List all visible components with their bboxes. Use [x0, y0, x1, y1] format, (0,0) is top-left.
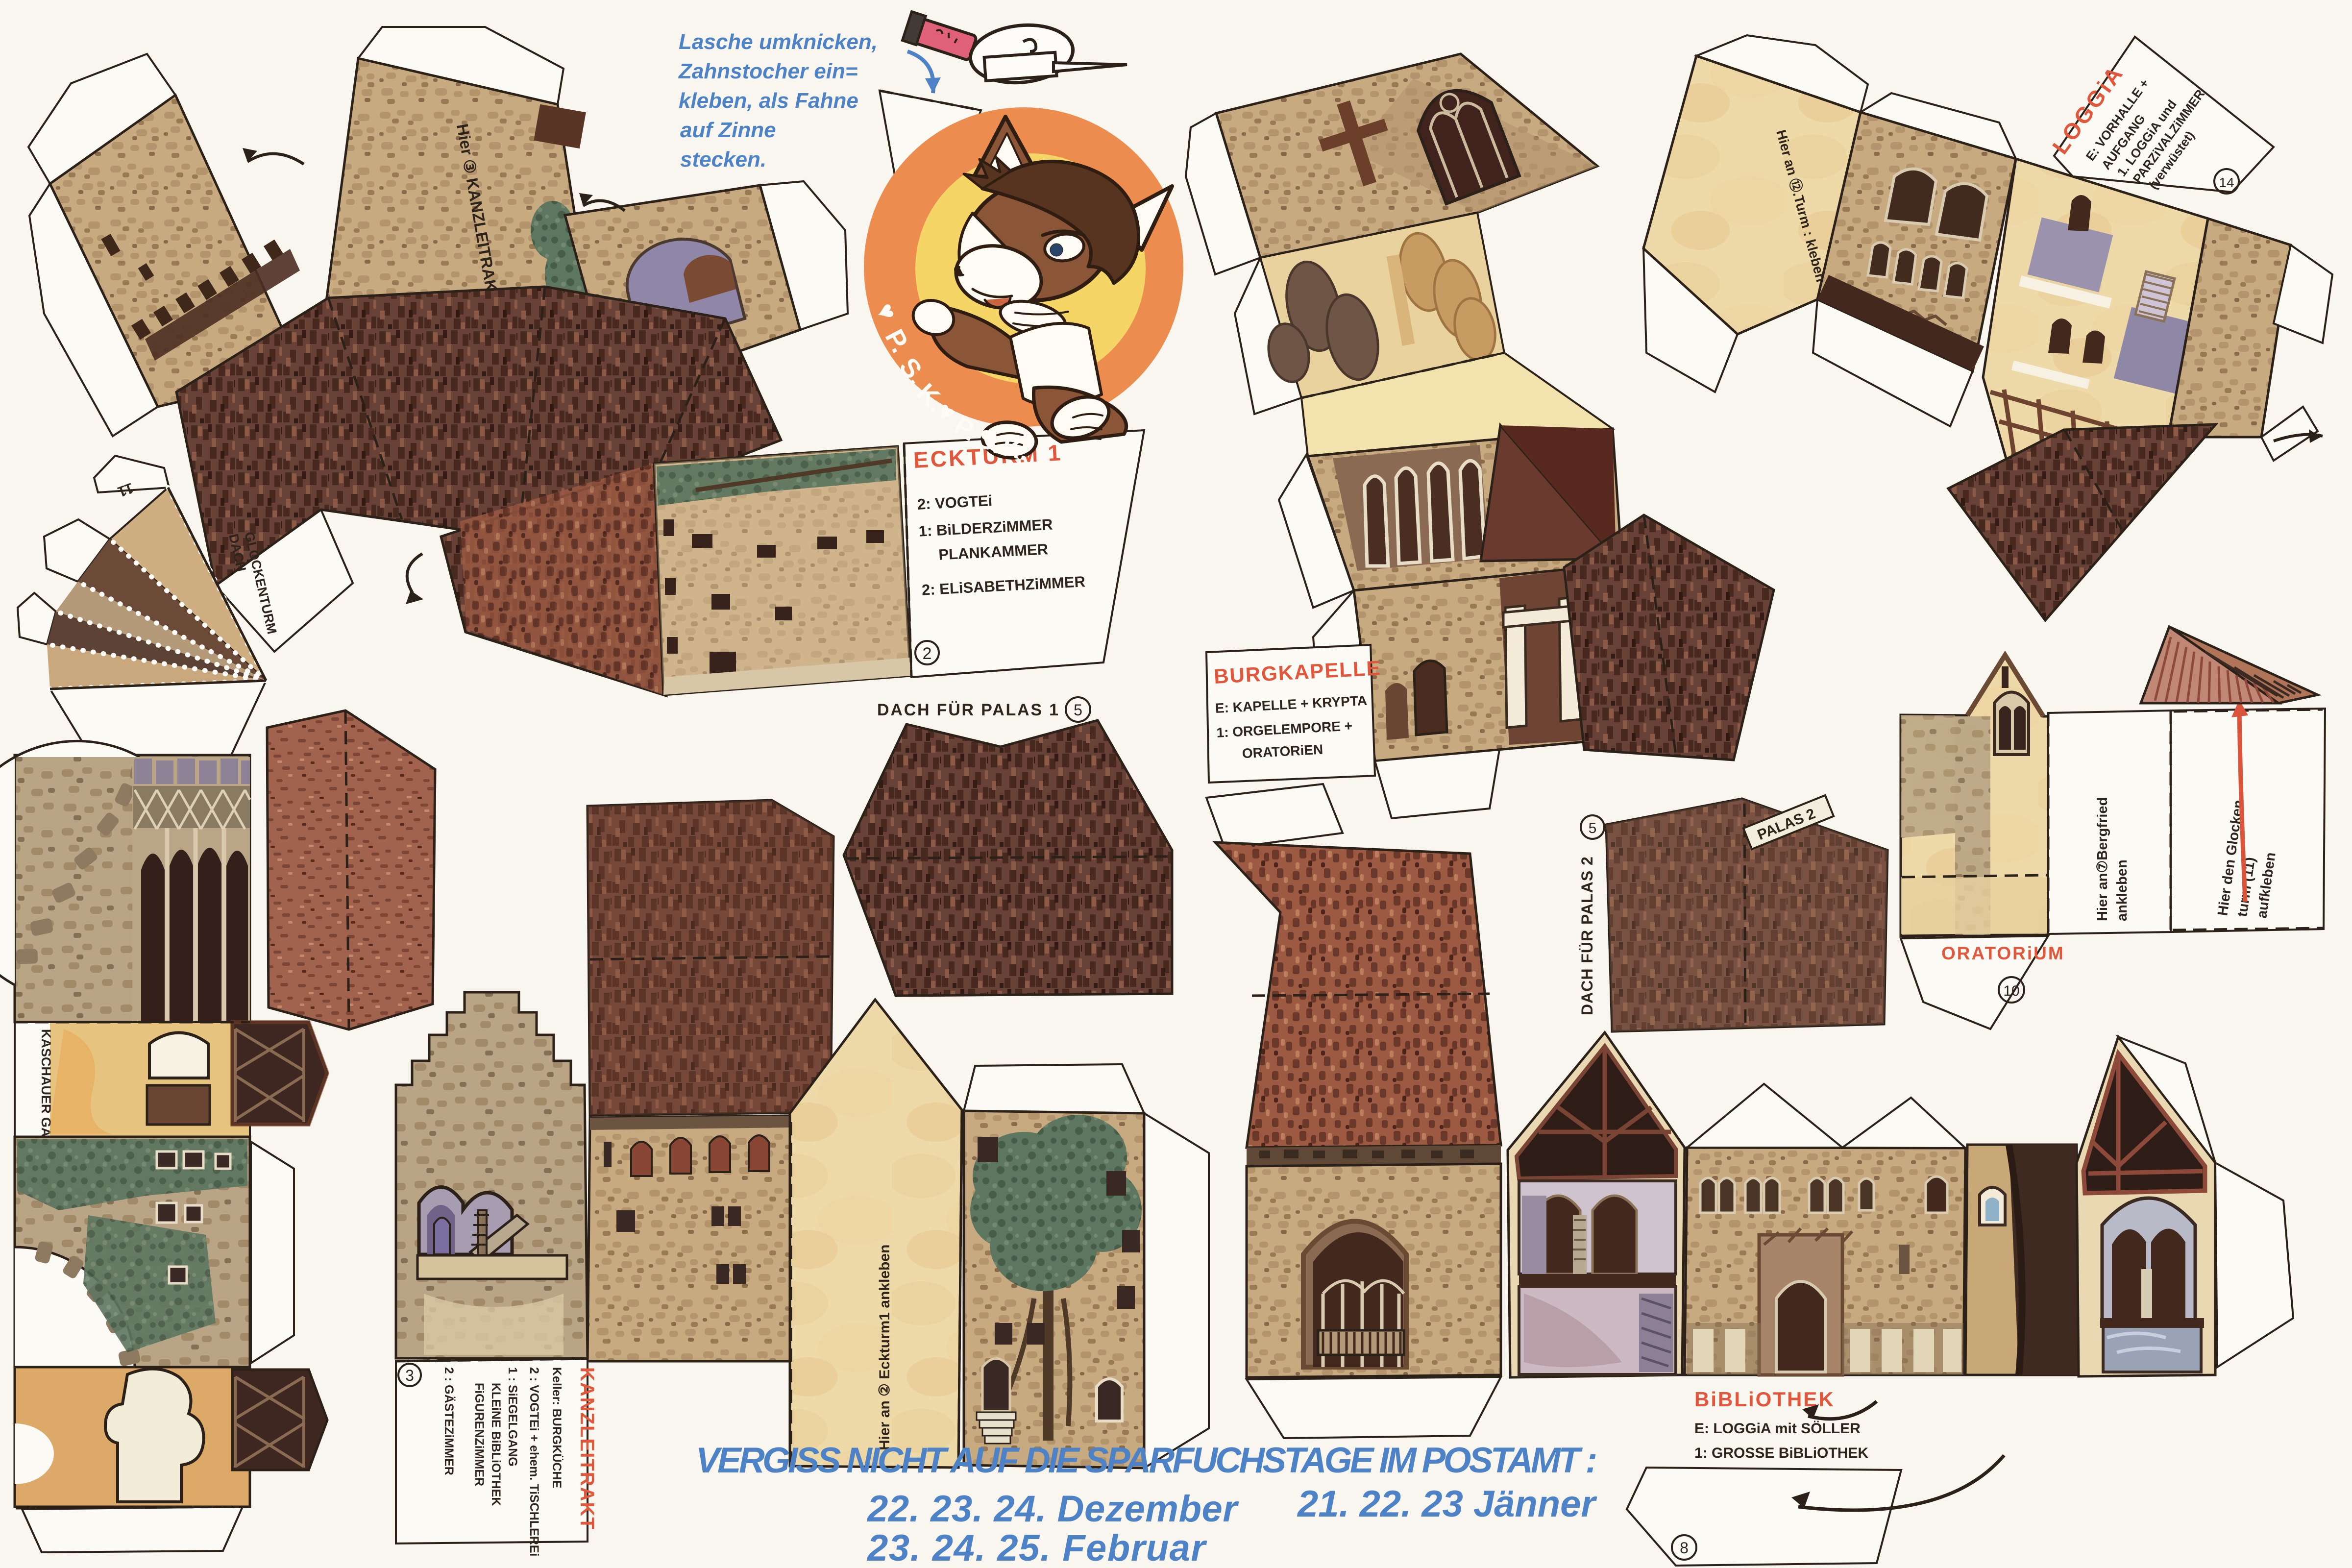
- svg-text:1: GROSSE BiBLiOTHEK: 1: GROSSE BiBLiOTHEK: [1694, 1445, 1868, 1461]
- svg-text:Hier an⑦Bergfried: Hier an⑦Bergfried: [2095, 797, 2110, 921]
- svg-text:Zahnstocher ein=: Zahnstocher ein=: [678, 59, 858, 83]
- svg-text:2 : VOGTEi + ehem. TiSCHLEREi: 2 : VOGTEi + ehem. TiSCHLEREi: [527, 1367, 541, 1556]
- svg-text:DACH FÜR PALAS 1: DACH FÜR PALAS 1: [877, 701, 1058, 719]
- svg-text:2: 2: [923, 644, 932, 663]
- svg-text:5: 5: [1589, 820, 1597, 836]
- svg-text:5: 5: [1074, 701, 1082, 719]
- svg-text:E: LOGGiA mit SÖLLER: E: LOGGiA mit SÖLLER: [1694, 1421, 1861, 1437]
- svg-text:14: 14: [2219, 175, 2234, 190]
- svg-text:Hier an ② Eckturm1 ankleben: Hier an ② Eckturm1 ankleben: [877, 1245, 893, 1450]
- svg-text:DACH FÜR PALAS 2: DACH FÜR PALAS 2: [1578, 856, 1596, 1015]
- svg-text:ankleben: ankleben: [2114, 859, 2130, 921]
- svg-text:Lasche umknicken,: Lasche umknicken,: [679, 30, 878, 54]
- svg-text:22. 23. 24. Dezember: 22. 23. 24. Dezember: [866, 1488, 1239, 1530]
- svg-text:FiGURENZiMMER: FiGURENZiMMER: [472, 1383, 486, 1486]
- svg-text:kleben, als Fahne: kleben, als Fahne: [679, 89, 858, 113]
- svg-text:8: 8: [1680, 1539, 1689, 1557]
- svg-text:3: 3: [405, 1367, 414, 1384]
- svg-text:ORATORiUM: ORATORiUM: [1941, 943, 2065, 963]
- svg-text:21. 22. 23 Jänner: 21. 22. 23 Jänner: [1297, 1483, 1597, 1525]
- svg-text:2 : GÄSTEZiMMER: 2 : GÄSTEZiMMER: [442, 1367, 456, 1475]
- svg-text:auf Zinne: auf Zinne: [680, 118, 776, 142]
- svg-text:KANZLEITRAKT: KANZLEITRAKT: [576, 1367, 598, 1530]
- svg-text:VERGISS NICHT AUF DIE SPARFUCH: VERGISS NICHT AUF DIE SPARFUCHSTAGE IM P…: [696, 1441, 1597, 1480]
- svg-text:10: 10: [2003, 983, 2019, 999]
- svg-text:stecken.: stecken.: [680, 147, 766, 171]
- svg-text:Keller: BURGKÜCHE: Keller: BURGKÜCHE: [550, 1367, 564, 1488]
- svg-text:23. 24. 25. Februar: 23. 24. 25. Februar: [866, 1527, 1207, 1568]
- svg-text:1 : SiEGELGANG: 1 : SiEGELGANG: [506, 1367, 519, 1467]
- svg-text:KLEiNE BiBLiOTHEK: KLEiNE BiBLiOTHEK: [489, 1383, 503, 1506]
